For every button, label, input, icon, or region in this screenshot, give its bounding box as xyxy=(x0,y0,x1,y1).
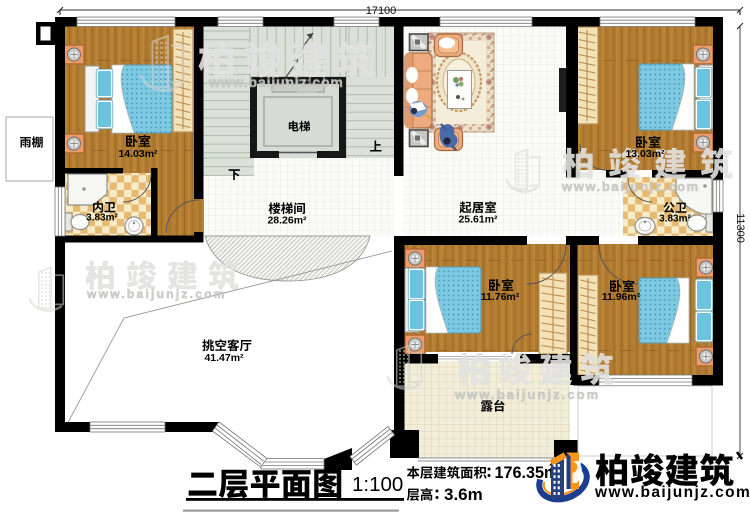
svg-text:11.96m²: 11.96m² xyxy=(602,291,641,303)
svg-text:www.baijunjz.com: www.baijunjz.com xyxy=(561,179,700,194)
svg-text:41.47m²: 41.47m² xyxy=(204,352,244,364)
svg-text:17100: 17100 xyxy=(366,5,397,17)
svg-text:www.baijunjz.com: www.baijunjz.com xyxy=(454,387,600,402)
svg-text:14.03m²: 14.03m² xyxy=(118,148,158,160)
svg-text:13.03m²: 13.03m² xyxy=(625,148,665,160)
svg-text:www.baijunjz.com: www.baijunjz.com xyxy=(208,74,344,90)
svg-text:www.baijunjz.com: www.baijunjz.com xyxy=(86,287,227,301)
svg-text:3.6m: 3.6m xyxy=(444,485,483,504)
svg-text:www.baijunjz.com: www.baijunjz.com xyxy=(594,484,750,501)
svg-text:11300: 11300 xyxy=(734,213,746,243)
svg-text:3.83m²: 3.83m² xyxy=(86,213,118,224)
svg-text:11.76m²: 11.76m² xyxy=(481,291,520,303)
svg-text:28.26m²: 28.26m² xyxy=(267,215,307,227)
svg-text:1:100: 1:100 xyxy=(352,473,403,496)
svg-text:25.61m²: 25.61m² xyxy=(458,214,498,226)
svg-text:3.83m²: 3.83m² xyxy=(659,214,691,225)
